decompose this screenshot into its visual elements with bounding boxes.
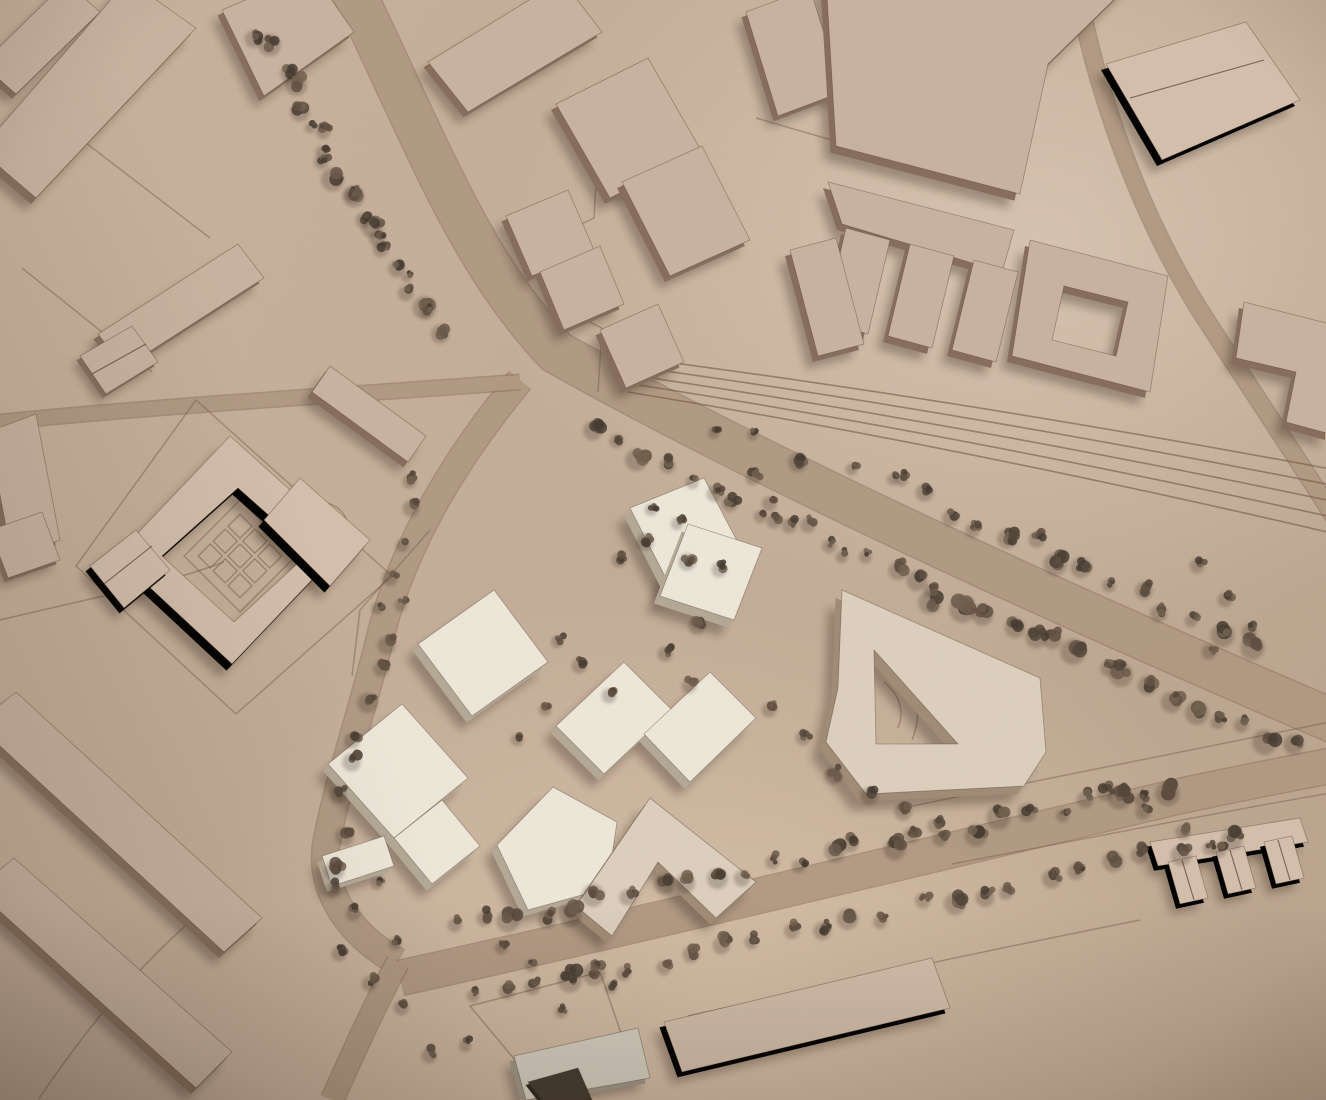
architectural-model-photograph <box>0 0 1326 1100</box>
film-grain-overlay <box>0 0 1326 1100</box>
model-scene-canvas <box>0 0 1326 1100</box>
